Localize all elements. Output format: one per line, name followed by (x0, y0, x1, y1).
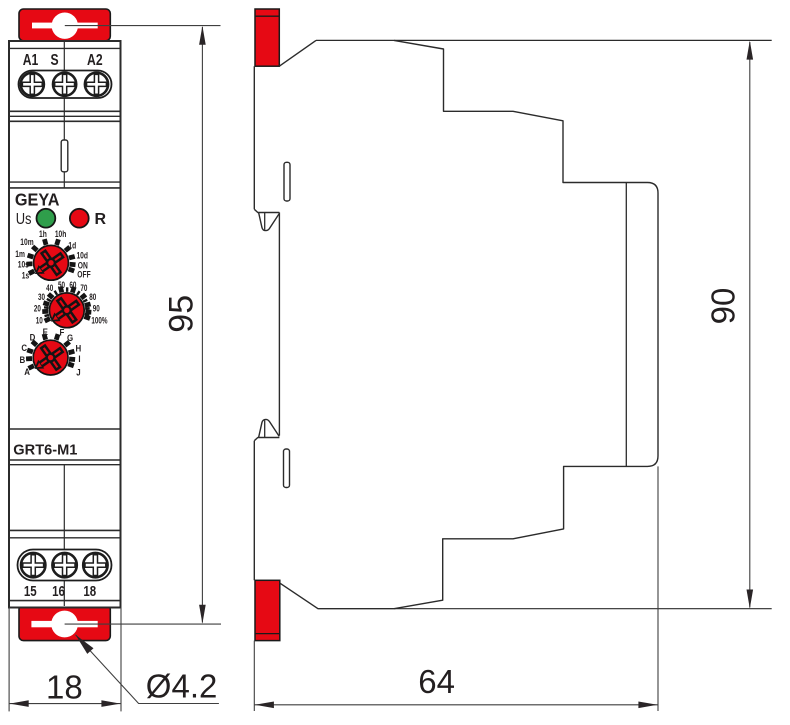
svg-text:95: 95 (162, 295, 200, 333)
svg-text:B: B (20, 354, 26, 365)
svg-text:G: G (67, 332, 73, 343)
svg-text:30: 30 (38, 292, 45, 303)
svg-text:D: D (30, 332, 36, 343)
svg-text:10h: 10h (55, 229, 67, 239)
svg-text:GEYA: GEYA (15, 190, 60, 210)
svg-text:16: 16 (52, 583, 65, 600)
svg-text:40: 40 (46, 283, 53, 294)
svg-text:S: S (50, 51, 58, 69)
svg-text:E: E (43, 326, 48, 337)
svg-text:90: 90 (704, 288, 741, 325)
svg-text:90: 90 (93, 303, 100, 314)
svg-text:18: 18 (46, 668, 83, 705)
svg-text:60: 60 (69, 280, 76, 291)
svg-text:Ø4.2: Ø4.2 (146, 667, 218, 704)
svg-text:C: C (21, 342, 27, 353)
svg-text:A2: A2 (87, 51, 103, 69)
svg-text:1d: 1d (68, 241, 76, 251)
svg-text:GRT6-M1: GRT6-M1 (13, 442, 77, 458)
svg-text:20: 20 (34, 303, 41, 314)
svg-text:50: 50 (58, 280, 65, 291)
svg-text:F: F (59, 327, 64, 338)
svg-text:R: R (95, 211, 107, 228)
svg-text:1h: 1h (39, 229, 47, 239)
svg-text:J: J (76, 367, 81, 378)
svg-text:OFF: OFF (77, 270, 90, 280)
svg-text:1m: 1m (15, 249, 25, 259)
svg-text:18: 18 (83, 583, 96, 600)
svg-text:10d: 10d (76, 250, 88, 260)
svg-text:15: 15 (24, 583, 37, 600)
svg-text:10: 10 (36, 315, 43, 326)
svg-text:64: 64 (418, 663, 455, 700)
svg-text:100%: 100% (91, 315, 107, 326)
svg-text:A1: A1 (23, 51, 39, 69)
svg-text:80: 80 (89, 292, 96, 303)
svg-text:10s: 10s (18, 259, 30, 269)
svg-text:A: A (24, 366, 30, 377)
svg-text:Us: Us (16, 211, 32, 229)
svg-text:I: I (78, 353, 80, 364)
svg-text:10m: 10m (20, 237, 33, 247)
svg-text:70: 70 (80, 283, 87, 294)
svg-text:1s: 1s (22, 271, 30, 281)
